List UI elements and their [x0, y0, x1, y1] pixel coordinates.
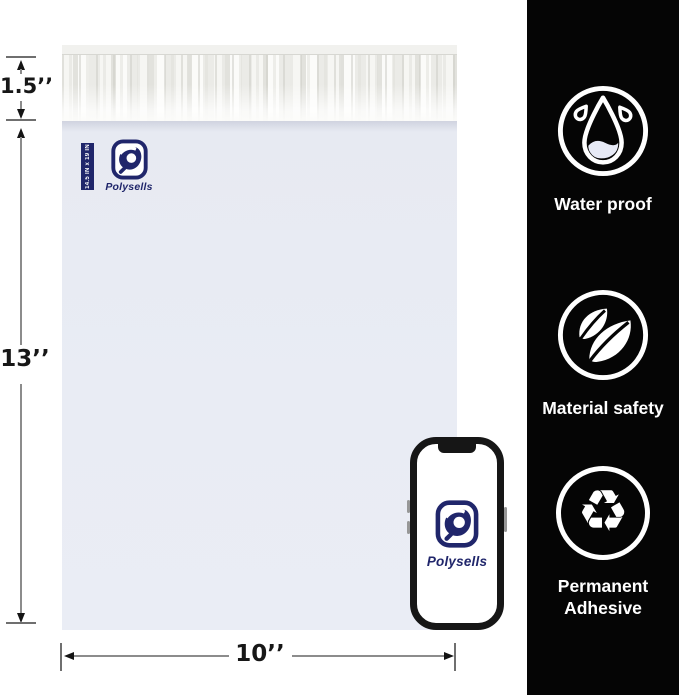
- dim-line: [20, 137, 22, 345]
- dim-tick: [6, 119, 36, 121]
- brand-name: Polysells: [105, 181, 152, 193]
- feature-label-material-safety: Material safety: [542, 398, 664, 420]
- feature-label-permanent-adhesive: Permanent Adhesive: [549, 576, 657, 620]
- size-strip: 14.5 IN x 19 IN: [81, 143, 94, 190]
- size-strip-label: 14.5 IN x 19 IN: [85, 144, 91, 189]
- dim-arrow-right: [444, 652, 454, 660]
- phone-screen: Polysells: [417, 444, 497, 623]
- phone-power-button: [504, 507, 507, 532]
- leaves-icon: [556, 288, 650, 382]
- dim-flap-height-label: 1.5’’: [0, 74, 46, 98]
- water-drop-icon: [556, 84, 650, 178]
- phone-brand-name: Polysells: [427, 554, 487, 569]
- dim-bag-width-label: 10’’: [232, 641, 288, 667]
- polysells-logo-icon: [111, 139, 148, 180]
- mailer-flap: [62, 45, 457, 121]
- dim-bag-height-label: 13’’: [0, 346, 53, 372]
- mailer-body: [62, 121, 457, 630]
- dim-line: [20, 101, 22, 109]
- dim-arrow-down: [17, 109, 25, 119]
- brand-logo: Polysells: [97, 139, 161, 193]
- product-image: 14.5 IN x 19 IN Polysells Polysells: [0, 0, 679, 695]
- phone-mockup: Polysells: [410, 437, 504, 630]
- dim-line: [292, 655, 444, 657]
- recycle-icon: ♻: [556, 466, 650, 560]
- dim-tick: [60, 643, 62, 671]
- feature-label-water-proof: Water proof: [554, 194, 652, 216]
- feature-permanent-adhesive: ♻ Permanent Adhesive: [527, 466, 679, 620]
- dim-tick: [6, 56, 36, 58]
- dim-tick: [6, 622, 36, 624]
- phone-volume-button: [407, 500, 410, 513]
- feature-water-proof: Water proof: [527, 84, 679, 216]
- recycle-glyph: ♻: [577, 482, 629, 540]
- dim-line: [74, 655, 229, 657]
- dim-arrow-left: [64, 652, 74, 660]
- dim-tick: [454, 643, 456, 671]
- feature-material-safety: Material safety: [527, 288, 679, 420]
- phone-volume-button: [407, 521, 410, 534]
- dim-line: [20, 384, 22, 613]
- polysells-logo-icon: [435, 500, 479, 548]
